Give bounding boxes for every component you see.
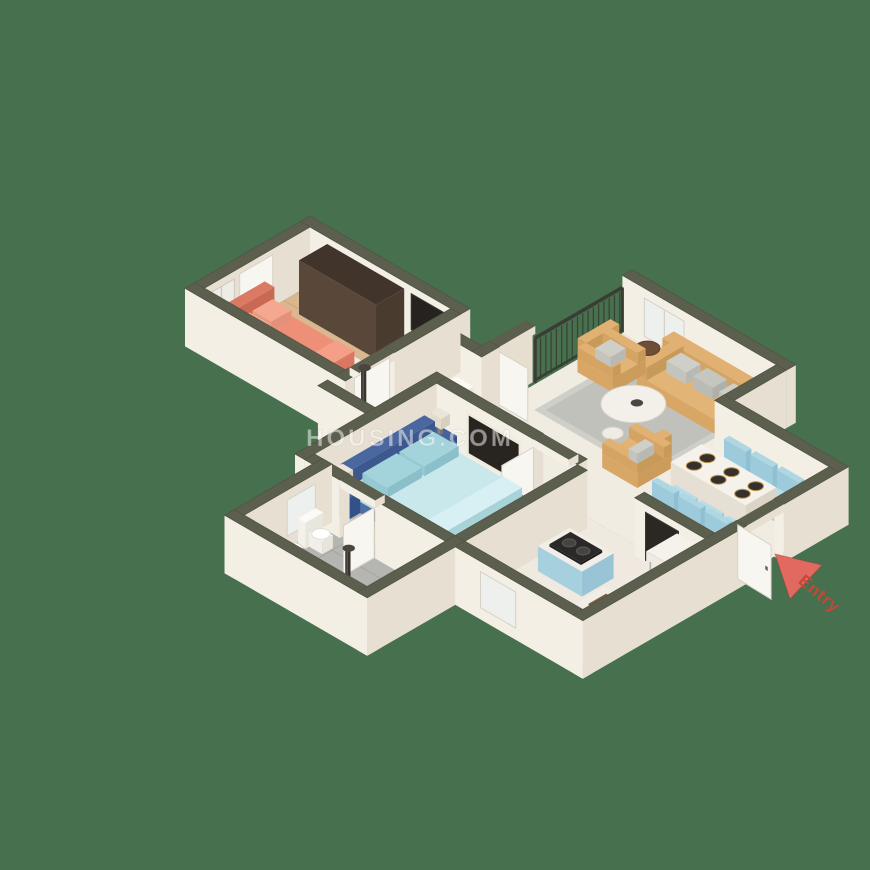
burner-1 xyxy=(562,539,576,547)
plate-6 xyxy=(735,489,751,498)
plate-3 xyxy=(748,482,764,491)
plate-4 xyxy=(686,461,702,470)
wall-living-top xyxy=(786,365,796,429)
coffee-table-deco xyxy=(631,399,643,406)
toilet2-seat xyxy=(312,529,331,540)
shower2-head xyxy=(343,545,355,552)
floorplan-canvas: HOUSING.COM Entry xyxy=(0,0,870,870)
wall-dining-top xyxy=(839,467,849,531)
plate-2 xyxy=(724,468,740,477)
wall-bathroom2-right xyxy=(358,592,368,656)
burner-2 xyxy=(576,547,590,555)
side-table-2 xyxy=(602,427,623,439)
floorplan-image: HOUSING.COM Entry xyxy=(0,0,870,870)
plate-5 xyxy=(711,475,727,484)
wall-kitchen-right xyxy=(573,615,583,679)
plate-1 xyxy=(700,454,716,463)
watermark: HOUSING.COM xyxy=(306,425,514,452)
shower1-head xyxy=(358,364,370,371)
